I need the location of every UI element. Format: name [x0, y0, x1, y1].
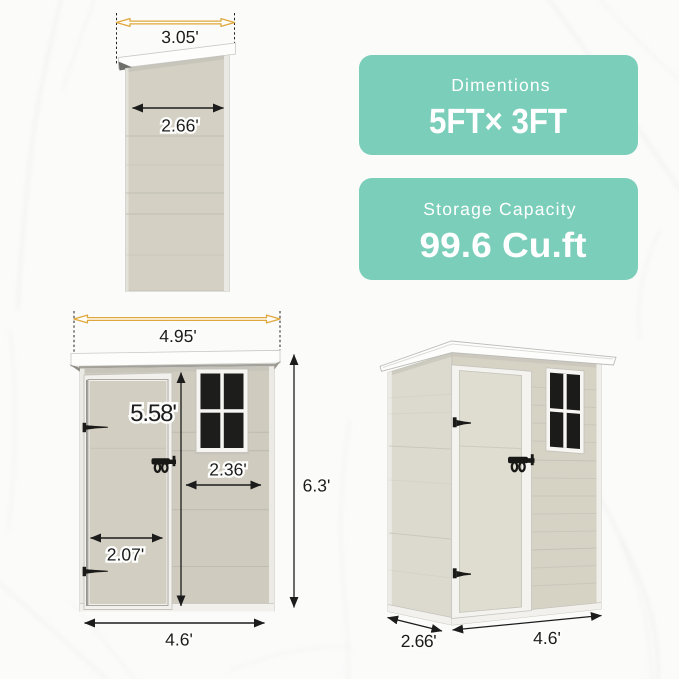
svg-text:4.6': 4.6': [533, 628, 561, 648]
svg-text:5FT× 3FT: 5FT× 3FT: [429, 102, 567, 141]
svg-text:2.66': 2.66': [161, 116, 198, 136]
svg-text:3.05': 3.05': [161, 27, 198, 47]
svg-text:2.07': 2.07': [107, 545, 144, 565]
svg-text:4.95': 4.95': [159, 326, 196, 346]
svg-text:2.66': 2.66': [401, 631, 436, 651]
svg-text:99.6 Cu.ft: 99.6 Cu.ft: [420, 226, 587, 265]
svg-text:Storage Capacity: Storage Capacity: [423, 199, 576, 219]
svg-text:6.3': 6.3': [303, 476, 331, 496]
svg-text:Dimentions: Dimentions: [451, 75, 551, 95]
svg-text:5.58': 5.58': [130, 400, 176, 427]
svg-text:4.6': 4.6': [165, 630, 193, 650]
svg-text:2.36': 2.36': [209, 460, 246, 480]
